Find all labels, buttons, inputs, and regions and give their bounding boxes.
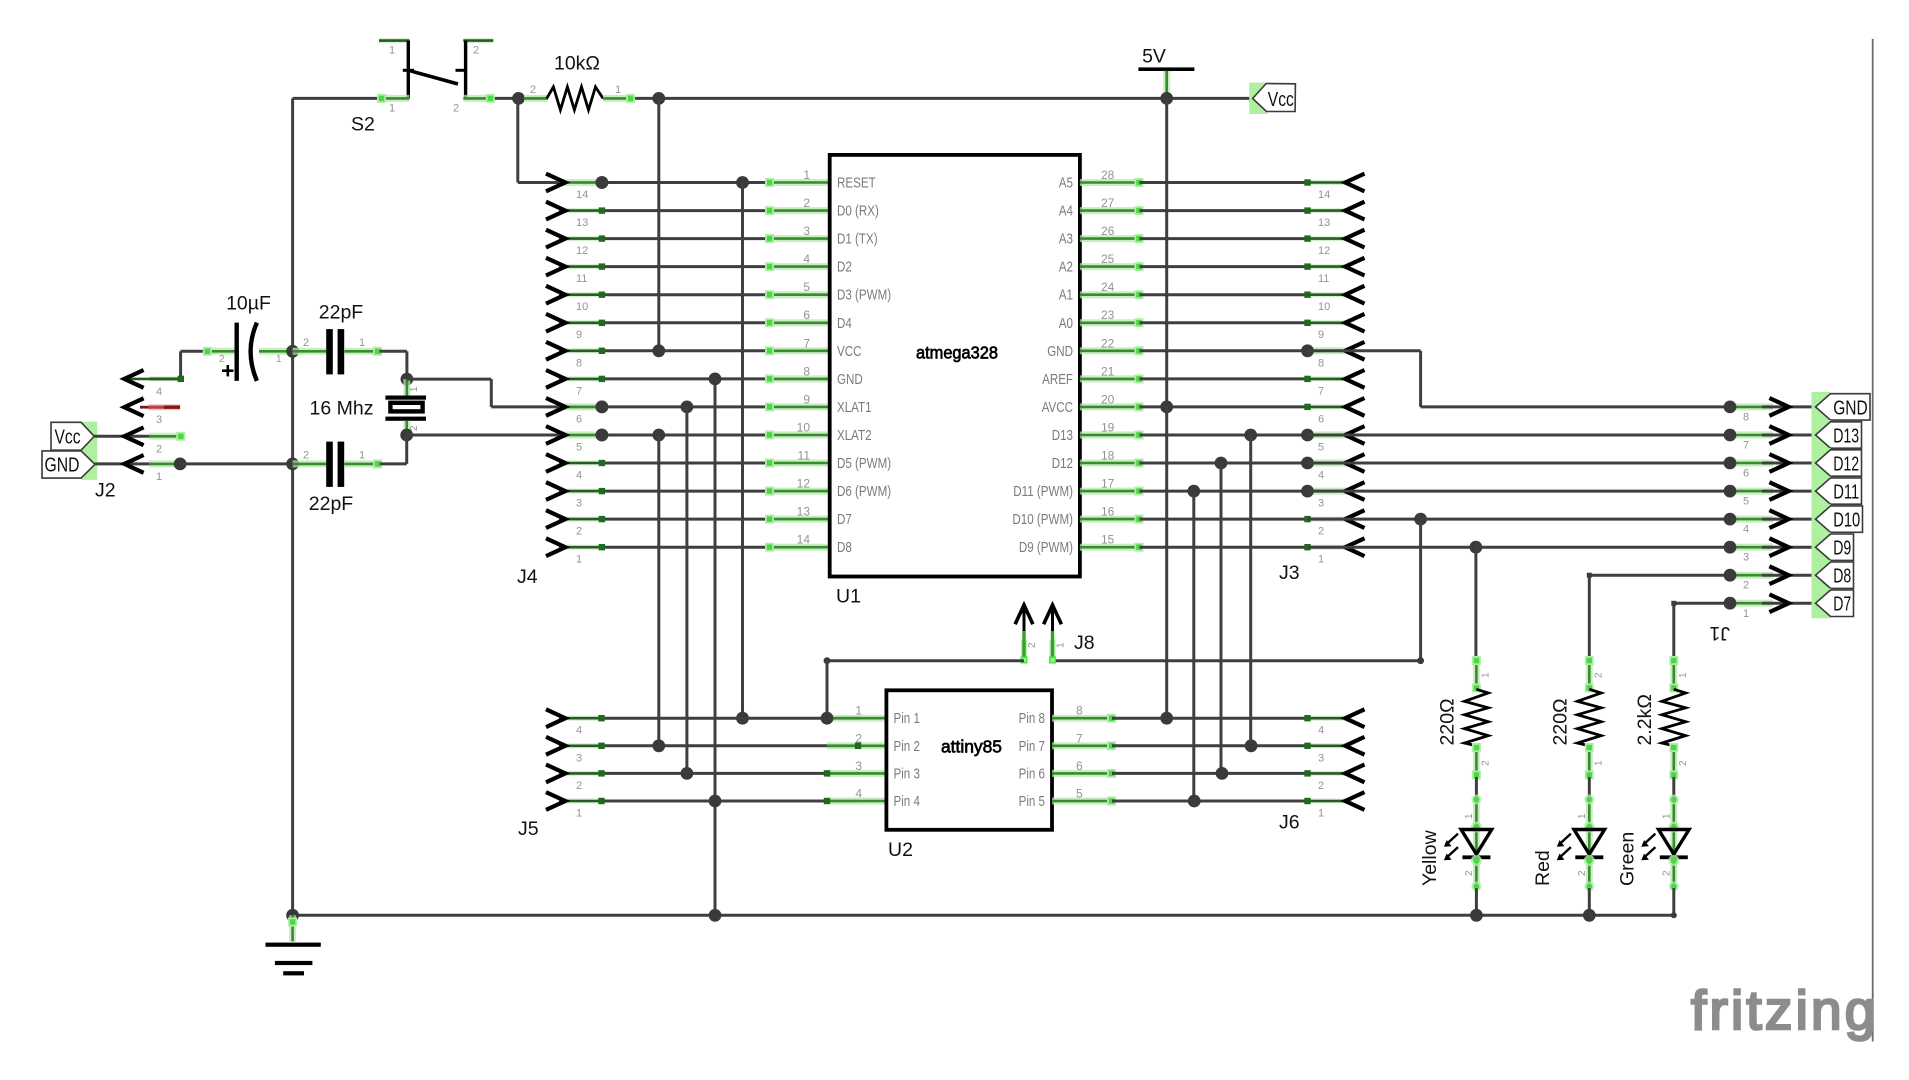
svg-text:11: 11 — [1318, 273, 1329, 285]
svg-text:S2: S2 — [351, 114, 375, 136]
svg-text:1: 1 — [156, 471, 162, 483]
svg-text:2: 2 — [156, 443, 162, 455]
svg-text:D8: D8 — [1833, 565, 1851, 588]
svg-text:A4: A4 — [1059, 204, 1073, 220]
svg-text:4: 4 — [576, 725, 582, 737]
svg-text:1: 1 — [1318, 808, 1324, 820]
svg-text:6: 6 — [1743, 468, 1749, 480]
svg-text:2: 2 — [576, 526, 582, 538]
svg-text:2: 2 — [1480, 760, 1491, 766]
svg-text:D0 (RX): D0 (RX) — [837, 204, 879, 220]
svg-text:D7: D7 — [837, 512, 852, 528]
svg-text:8: 8 — [1743, 411, 1749, 423]
svg-text:1: 1 — [615, 84, 621, 96]
svg-text:Pin 2: Pin 2 — [894, 739, 920, 755]
svg-text:XLAT1: XLAT1 — [837, 400, 872, 416]
svg-text:6: 6 — [803, 308, 810, 322]
svg-text:Green: Green — [1616, 832, 1638, 886]
svg-text:2: 2 — [1464, 870, 1475, 876]
svg-text:4: 4 — [156, 386, 162, 398]
svg-text:4: 4 — [1318, 470, 1324, 482]
svg-text:U1: U1 — [836, 586, 861, 608]
svg-text:18: 18 — [1101, 449, 1115, 463]
svg-text:7: 7 — [1318, 385, 1324, 397]
svg-text:21: 21 — [1101, 364, 1115, 378]
svg-text:D10 (PWM): D10 (PWM) — [1012, 512, 1073, 528]
svg-text:8: 8 — [576, 357, 582, 369]
svg-text:8: 8 — [1318, 357, 1324, 369]
svg-text:3: 3 — [803, 224, 810, 238]
svg-text:GND: GND — [1047, 344, 1073, 360]
svg-text:17: 17 — [1101, 477, 1115, 491]
svg-text:3: 3 — [156, 414, 162, 426]
svg-text:Yellow: Yellow — [1419, 829, 1441, 886]
svg-text:D2: D2 — [837, 260, 852, 276]
svg-text:U2: U2 — [888, 839, 913, 861]
svg-text:1: 1 — [803, 168, 810, 182]
svg-text:220Ω: 220Ω — [1549, 698, 1571, 745]
svg-text:10: 10 — [1318, 301, 1330, 313]
svg-text:14: 14 — [797, 533, 811, 547]
svg-text:2: 2 — [453, 103, 459, 115]
svg-text:6: 6 — [1076, 759, 1083, 773]
svg-text:VCC: VCC — [837, 344, 862, 360]
svg-text:220Ω: 220Ω — [1436, 698, 1458, 745]
svg-text:7: 7 — [803, 336, 810, 350]
svg-text:7: 7 — [1076, 731, 1083, 745]
svg-text:6: 6 — [1318, 413, 1324, 425]
svg-text:2: 2 — [1661, 870, 1672, 876]
svg-text:1: 1 — [276, 354, 282, 365]
svg-text:Red: Red — [1532, 850, 1554, 886]
svg-text:6: 6 — [576, 413, 582, 425]
svg-text:16: 16 — [1101, 505, 1115, 519]
svg-text:A2: A2 — [1059, 260, 1073, 276]
svg-text:GND: GND — [1833, 396, 1868, 419]
svg-text:5: 5 — [1318, 442, 1324, 454]
svg-text:XLAT2: XLAT2 — [837, 428, 872, 444]
svg-text:27: 27 — [1101, 196, 1115, 210]
svg-text:1: 1 — [576, 554, 582, 566]
svg-text:RESET: RESET — [837, 176, 876, 192]
svg-text:3: 3 — [1318, 752, 1324, 764]
svg-text:2: 2 — [576, 780, 582, 792]
svg-text:2: 2 — [1318, 780, 1324, 792]
svg-text:1: 1 — [1056, 642, 1067, 648]
svg-text:13: 13 — [1318, 217, 1330, 229]
svg-text:AVCC: AVCC — [1042, 400, 1073, 416]
svg-text:A1: A1 — [1059, 288, 1073, 304]
svg-text:1: 1 — [389, 45, 395, 57]
svg-text:D9 (PWM): D9 (PWM) — [1019, 540, 1073, 556]
svg-text:Vcc: Vcc — [55, 426, 81, 449]
svg-text:J5: J5 — [518, 818, 539, 840]
svg-text:5: 5 — [1076, 787, 1083, 801]
svg-text:11: 11 — [798, 449, 811, 463]
svg-text:A3: A3 — [1059, 232, 1073, 248]
svg-text:8: 8 — [803, 364, 810, 378]
svg-text:26: 26 — [1101, 224, 1115, 238]
svg-text:1: 1 — [1743, 608, 1749, 620]
svg-text:J3: J3 — [1279, 562, 1300, 584]
svg-text:D10: D10 — [1833, 509, 1860, 532]
svg-text:22pF: 22pF — [309, 493, 354, 515]
svg-text:9: 9 — [576, 329, 582, 341]
svg-text:13: 13 — [797, 505, 811, 519]
svg-text:13: 13 — [576, 217, 588, 229]
svg-text:28: 28 — [1101, 168, 1115, 182]
svg-text:2: 2 — [1678, 760, 1689, 766]
svg-text:4: 4 — [803, 252, 810, 266]
svg-text:GND: GND — [837, 372, 863, 388]
svg-text:attiny85: attiny85 — [941, 737, 1002, 757]
svg-text:1: 1 — [1678, 672, 1689, 678]
svg-text:2: 2 — [1743, 580, 1749, 592]
svg-text:2: 2 — [219, 354, 225, 365]
svg-text:fritzing: fritzing — [1691, 979, 1879, 1041]
svg-text:J2: J2 — [95, 480, 116, 502]
svg-text:16 Mhz: 16 Mhz — [310, 398, 374, 420]
svg-text:1: 1 — [855, 704, 862, 718]
svg-text:4: 4 — [576, 470, 582, 482]
svg-text:1: 1 — [359, 337, 365, 349]
svg-text:Pin 8: Pin 8 — [1019, 711, 1045, 727]
svg-text:2: 2 — [303, 450, 309, 462]
svg-text:14: 14 — [576, 189, 588, 201]
svg-text:3: 3 — [576, 752, 582, 764]
svg-text:5: 5 — [576, 442, 582, 454]
svg-text:3: 3 — [1743, 552, 1749, 564]
svg-text:10kΩ: 10kΩ — [554, 53, 600, 75]
svg-text:1: 1 — [1661, 813, 1672, 819]
svg-text:2: 2 — [530, 84, 536, 96]
svg-text:2: 2 — [1577, 870, 1588, 876]
svg-text:7: 7 — [1743, 440, 1749, 452]
svg-text:J6: J6 — [1279, 812, 1300, 834]
svg-text:D12: D12 — [1833, 452, 1859, 475]
svg-text:J1: J1 — [1709, 622, 1730, 644]
svg-text:D13: D13 — [1052, 428, 1073, 444]
svg-text:10: 10 — [797, 421, 811, 435]
svg-text:1: 1 — [1577, 813, 1588, 819]
svg-text:9: 9 — [1318, 329, 1324, 341]
svg-text:2: 2 — [303, 337, 309, 349]
svg-text:D7: D7 — [1833, 593, 1851, 616]
svg-text:D4: D4 — [837, 316, 852, 332]
svg-text:1: 1 — [1464, 813, 1475, 819]
svg-text:D6 (PWM): D6 (PWM) — [837, 484, 891, 500]
svg-text:atmega328: atmega328 — [916, 343, 998, 363]
svg-text:9: 9 — [803, 392, 810, 406]
svg-text:D12: D12 — [1052, 456, 1073, 472]
svg-text:D3 (PWM): D3 (PWM) — [837, 288, 891, 304]
svg-text:2: 2 — [803, 196, 810, 210]
svg-text:15: 15 — [1101, 533, 1115, 547]
svg-text:25: 25 — [1101, 252, 1115, 266]
svg-text:22pF: 22pF — [319, 302, 364, 324]
svg-text:24: 24 — [1101, 280, 1115, 294]
svg-text:Pin 3: Pin 3 — [894, 766, 920, 782]
svg-text:Pin 5: Pin 5 — [1019, 794, 1045, 810]
svg-text:A0: A0 — [1059, 316, 1073, 332]
svg-text:D1 (TX): D1 (TX) — [837, 232, 878, 248]
svg-text:2: 2 — [1318, 526, 1324, 538]
svg-text:12: 12 — [797, 477, 811, 491]
svg-text:3: 3 — [1318, 498, 1324, 510]
svg-text:3: 3 — [576, 498, 582, 510]
svg-text:2: 2 — [1027, 642, 1038, 648]
svg-text:1: 1 — [1593, 760, 1604, 766]
svg-text:AREF: AREF — [1042, 372, 1073, 388]
svg-text:12: 12 — [1318, 245, 1330, 257]
svg-text:Pin 6: Pin 6 — [1019, 766, 1045, 782]
svg-text:3: 3 — [855, 759, 862, 773]
svg-text:D13: D13 — [1833, 424, 1859, 447]
svg-text:4: 4 — [855, 787, 862, 801]
svg-text:D11 (PWM): D11 (PWM) — [1013, 484, 1073, 500]
svg-text:20: 20 — [1101, 392, 1115, 406]
svg-text:7: 7 — [576, 385, 582, 397]
svg-text:1: 1 — [389, 103, 395, 115]
svg-text:1: 1 — [576, 808, 582, 820]
svg-text:5V: 5V — [1142, 46, 1166, 68]
svg-text:Pin 1: Pin 1 — [894, 711, 920, 727]
svg-text:23: 23 — [1101, 308, 1115, 322]
svg-text:11: 11 — [576, 273, 587, 285]
svg-text:D8: D8 — [837, 540, 852, 556]
svg-text:D9: D9 — [1833, 537, 1851, 560]
svg-text:D11: D11 — [1833, 480, 1859, 503]
svg-text:Vcc: Vcc — [1268, 88, 1294, 111]
svg-text:10µF: 10µF — [226, 293, 271, 315]
svg-text:14: 14 — [1318, 189, 1330, 201]
svg-text:A5: A5 — [1059, 176, 1073, 192]
svg-text:4: 4 — [1318, 725, 1324, 737]
svg-text:5: 5 — [1743, 496, 1749, 508]
svg-text:1: 1 — [1480, 672, 1491, 678]
svg-text:5: 5 — [803, 280, 810, 294]
svg-text:2: 2 — [409, 425, 420, 431]
svg-text:J8: J8 — [1074, 632, 1095, 654]
svg-text:2: 2 — [473, 45, 479, 57]
svg-text:D5 (PWM): D5 (PWM) — [837, 456, 891, 472]
svg-text:1: 1 — [1318, 554, 1324, 566]
svg-text:8: 8 — [1076, 704, 1083, 718]
svg-text:J4: J4 — [517, 566, 538, 588]
svg-text:Pin 4: Pin 4 — [894, 794, 920, 810]
svg-text:2: 2 — [1593, 672, 1604, 678]
svg-text:Pin 7: Pin 7 — [1019, 739, 1045, 755]
svg-text:2.2kΩ: 2.2kΩ — [1634, 694, 1656, 745]
svg-text:1: 1 — [359, 450, 365, 462]
svg-text:19: 19 — [1101, 421, 1115, 435]
svg-text:4: 4 — [1743, 524, 1749, 536]
svg-text:12: 12 — [576, 245, 588, 257]
svg-text:1: 1 — [409, 386, 420, 392]
svg-text:GND: GND — [45, 454, 80, 477]
svg-text:22: 22 — [1101, 336, 1115, 350]
svg-text:10: 10 — [576, 301, 588, 313]
